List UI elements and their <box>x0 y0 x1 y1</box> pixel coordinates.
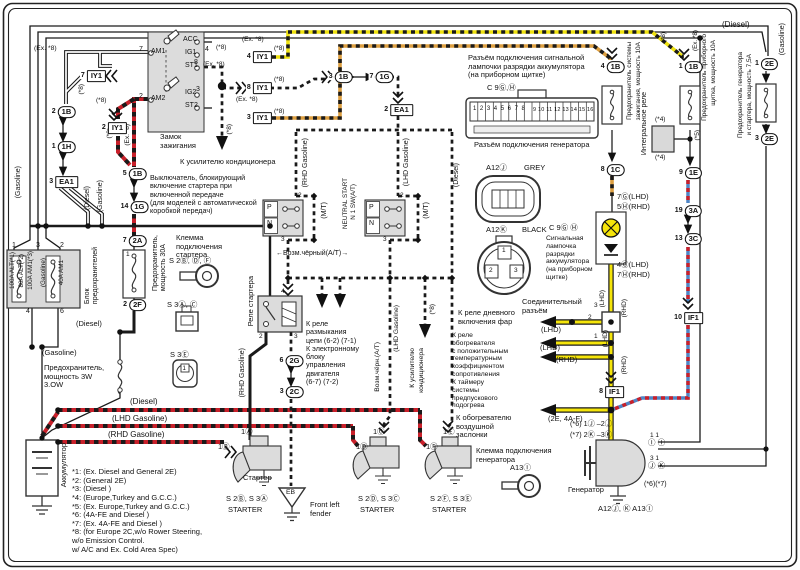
starter2-pin-c: 1Ⓒ <box>373 428 385 437</box>
relay-pin-3: 3 <box>294 333 298 340</box>
s8-7iy1: (*8) <box>78 84 85 94</box>
fb-pin-1: 1 <box>12 242 16 250</box>
eb-label: EB <box>286 489 295 497</box>
fb-pin-3: 3 <box>36 242 40 250</box>
connector-3-EA1: 3EA1 <box>48 176 78 188</box>
pn-right-pin2: 2 <box>400 192 404 199</box>
connector-1-1B-pin: 1 <box>678 64 684 71</box>
connector-13-3C-pin: 13 <box>674 236 684 243</box>
connector-8-1C: 81C <box>600 164 625 176</box>
s8-panel: (*8) <box>660 32 667 42</box>
choke-heater-note: К обогревателю воздушной заслонки <box>456 414 546 440</box>
connector-6-2G-pin: 6 <box>279 358 285 365</box>
connector-8-IY1: 8IY1 <box>246 82 272 94</box>
connector-1-2E-pin: 1 <box>754 61 760 68</box>
connector-7-1G-id: 1G <box>375 71 393 83</box>
connector-19-3A: 193A <box>674 205 702 217</box>
gen-terminal-label: Клемма подключения генератора <box>476 447 596 464</box>
jb-pin-3: 3 <box>594 302 598 309</box>
pn-left-n: N <box>267 220 272 228</box>
front-left-fender: Front left fender <box>310 501 340 518</box>
fb-pin-6: 6 <box>60 308 64 316</box>
star5: (*5) <box>694 130 701 140</box>
connector-1-1B-id: 1B <box>685 61 703 73</box>
connector-9-1E-pin: 9 <box>678 170 684 177</box>
pin-st1-8: 8 <box>194 59 198 67</box>
a12j: A12Ⓙ <box>486 164 507 173</box>
diesel-wire-label: (Diesel) <box>130 397 158 406</box>
starter1-en: STARTER <box>228 506 262 515</box>
s8-row3b: (*8) <box>274 108 284 115</box>
ex8-panel: (Ex. *8) <box>692 30 699 51</box>
gasoline-topright: (Gasoline) <box>779 23 787 55</box>
starter2-pin-d: 1Ⓓ <box>356 443 368 452</box>
starter1-pin-a: 1Ⓐ <box>241 428 253 437</box>
gasoline-ea1: (Gasoline) <box>97 180 105 212</box>
starter3-codes: S 2Ⓕ, S 3Ⓔ <box>430 495 472 504</box>
starter1-codes: S 2Ⓑ, S 3Ⓐ <box>226 495 268 504</box>
c9gh-lamp: C 9Ⓖ Ⓗ <box>549 224 578 233</box>
connector-3-EA1-pin: 3 <box>48 179 54 186</box>
battery-label: Аккумулятор <box>60 443 69 487</box>
ign-fuse-v1: Предохранитель системы <box>626 42 633 120</box>
gen-fuse-v2: и стартера, мощность 7,5А <box>746 54 753 135</box>
starter3-pin-e: 1Ⓔ <box>443 428 455 437</box>
a12j-grey: GREY <box>524 164 545 173</box>
connector-3-EA1-id: EA1 <box>55 176 78 188</box>
s8-row2b: (*8) <box>274 76 284 83</box>
fb-pin-2: 2 <box>60 242 64 250</box>
glow-timer-note: К таймеру системы предпускового подогрев… <box>452 379 522 410</box>
starter1-label: Стартер <box>243 474 272 483</box>
connector-3-2E-pin: 3 <box>754 136 760 143</box>
connector-3-2C-pin: 3 <box>279 389 285 396</box>
connector-4-1B-id: 1B <box>607 61 625 73</box>
charge-lamp-label: Сигнальная лампочка разрядки аккумулятор… <box>546 235 606 282</box>
vozm-black-at: ←Возм.чёрный(А/Т)→ <box>276 250 348 258</box>
neutral-start-2: N 1 SW(A/T) <box>350 184 357 220</box>
ignition-am1: AM1 <box>151 48 165 56</box>
connector-10-IF1: 10IF1 <box>673 312 703 324</box>
rhd-gasoline-wire-label: (RHD Gasoline) <box>108 430 164 439</box>
lamp-pin-4g-lhd: 4Ⓖ(LHD) <box>617 261 649 270</box>
lamp-pin-7g-lhd: 7Ⓖ(LHD) <box>617 193 649 202</box>
connector-3-1B-id: 1B <box>335 71 353 83</box>
s8-row1b: (*8) <box>274 45 284 52</box>
connector-1-1H-id: 1H <box>58 141 76 153</box>
gen-right-pins-jk: Ⓙ Ⓚ <box>648 462 665 471</box>
connector-3-2E-id: 2E <box>761 133 778 145</box>
connector-2-IY1: 2IY1 <box>101 122 127 134</box>
connector-3-2C-id: 2C <box>286 386 304 398</box>
drl-relay-note: К реле дневного включения фар <box>458 309 548 326</box>
s8-2iy1: (*8) <box>96 97 106 104</box>
connector-2-EA1-pin: 2 <box>383 107 389 114</box>
star4-a: (*4) <box>655 116 665 123</box>
starter3-en: STARTER <box>432 506 466 515</box>
connector-10-IF1-pin: 10 <box>673 315 683 322</box>
ac-amp-v2: кондиционера <box>418 348 426 393</box>
connector-2-EA1-id: EA1 <box>390 104 413 116</box>
connector-8-IF1-pin: 8 <box>598 389 604 396</box>
rhd-v-b: (RHD) <box>621 356 628 374</box>
connector-3-1B-pin: 3 <box>328 74 334 81</box>
c9-pins-1-8: 12345678 <box>473 106 529 113</box>
s8-acamp2: (*8) <box>429 304 436 314</box>
starter1-pin-b: 1Ⓑ <box>218 443 230 452</box>
lhd-p1: (LHD) <box>541 326 561 335</box>
gen-bottom-codes: A12Ⓙ, Ⓚ A13Ⓘ <box>598 505 653 514</box>
circuit-relay-note: К реле размыкания цепи (6-2) (7-1) К эле… <box>306 320 376 386</box>
connector-7-2A-id: 2A <box>129 235 147 247</box>
fuse-30a-label: Предохранитель, мощность 30А <box>152 235 168 291</box>
ex8-row2: (Ex. *8) <box>236 96 258 103</box>
generator-label: Генератор <box>568 486 604 495</box>
rhd-gas-v1: (RHD Gasoline) <box>239 348 247 397</box>
ignition-ig2: IG2 <box>185 89 196 97</box>
connector-7-IY1-pin: 7 <box>80 73 86 80</box>
ignition-st2: ST2 <box>185 102 198 110</box>
panel-fuse-v2: щитка, мощность 10А <box>710 40 717 106</box>
diesel-2f: (Diesel) <box>76 320 102 329</box>
connector-14-1G-pin: 14 <box>120 204 130 211</box>
pin-ig1-4: 4 <box>205 46 209 54</box>
c9gh-top: C 9Ⓖ,Ⓗ <box>487 84 516 93</box>
connector-6-2G: 62G <box>279 355 304 367</box>
lhd-gas-v2: (LHD Gasoline) <box>403 138 411 186</box>
inhibitor-note: Выключатель, блокирующий включение старт… <box>150 174 300 215</box>
jb-pin-2: 2 <box>588 314 592 321</box>
connector-8-1C-pin: 8 <box>600 167 606 174</box>
connector-4-IY1-pin: 4 <box>246 54 252 61</box>
connector-3-2E: 32E <box>754 133 778 145</box>
star4-b: (*4) <box>655 154 665 161</box>
connector-13-3C-id: 3C <box>685 233 703 245</box>
rhd-v-a: (RHD) <box>621 299 628 317</box>
ex8-row1: (Ex. *8) <box>242 36 264 43</box>
ignition-ig1: IG1 <box>185 49 196 57</box>
rhd-p2: (RHD) <box>556 356 577 365</box>
gen-right-pins-ii: Ⓘ Ⓘ <box>648 439 665 448</box>
fuse-3w-label: Предохранитель, мощность 3W 3.OW <box>44 364 124 390</box>
vozm-chern-v: Возм.чёрн.(А/Т) <box>374 342 382 392</box>
connector-5-1B-id: 1B <box>129 168 147 180</box>
pin-7-am1: 7 <box>139 46 143 54</box>
connector-3-IY1: 3IY1 <box>246 112 272 124</box>
lhd-v-a: (LHD) <box>599 290 606 307</box>
fuse30-pin1: 1 <box>126 251 130 258</box>
connector-2-2F-id: 2F <box>129 299 146 311</box>
s3e: S 3Ⓔ <box>170 351 189 360</box>
connector-3-IY1-id: IY1 <box>253 112 272 124</box>
connector-7-2A-pin: 7 <box>122 238 128 245</box>
ac-amp-label-1: К усилителю кондиционера <box>180 158 380 167</box>
panel-fuse-v1: Предохранитель приборного <box>701 34 708 121</box>
connector-7-IY1-id: IY1 <box>87 70 106 82</box>
connector-4-1B: 41B <box>600 61 625 73</box>
starter3-pin-f: 1Ⓕ <box>426 443 438 452</box>
connector-10-IF1-id: IF1 <box>684 312 703 324</box>
s2bdf: S 2Ⓑ, Ⓓ, Ⓕ <box>169 257 211 266</box>
wiring-diagram: (Ex. *8)72ACCIG1ST1IG2ST2AM1AM248(Ex. *8… <box>0 0 800 570</box>
pn-right-p: P <box>369 204 374 212</box>
connector-1-2E-id: 2E <box>761 58 778 70</box>
s8-row1a: (*8) <box>216 44 226 51</box>
gasoline-bat: (Gasoline) <box>42 349 77 358</box>
relay-pin-2: 2 <box>259 333 263 340</box>
relay-pin-4: 4 <box>281 288 285 295</box>
gen-conn-note: Разъём подключения генератора <box>474 141 644 150</box>
a12k-pin2: 2 <box>489 267 493 274</box>
connector-3-1B: 31B <box>328 71 353 83</box>
fb-gasoline: (Gasoline) <box>40 258 47 287</box>
s3ac: S 3Ⓐ, Ⓒ <box>167 301 197 310</box>
a12k-black: BLACK <box>522 226 547 235</box>
connector-3-IY1-pin: 3 <box>246 115 252 122</box>
starter2-codes: S 2Ⓓ, S 3Ⓒ <box>358 495 400 504</box>
lamp-pin-7h-rhd: 7Ⓗ(RHD) <box>617 271 650 280</box>
a13i: A13Ⓘ <box>510 464 531 473</box>
connector-1-1H: 11H <box>51 141 76 153</box>
connector-14-1G-id: 1G <box>130 201 148 213</box>
connector-8-IF1-id: IF1 <box>605 386 624 398</box>
connector-4-1B-pin: 4 <box>600 64 606 71</box>
diesel-ea1: (Diesel) <box>84 186 92 210</box>
ignition-am2: AM2 <box>151 95 165 103</box>
connector-14-1G: 141G <box>120 201 149 213</box>
s8-acamp: (*8) <box>226 124 233 134</box>
connector-8-IF1: 8IF1 <box>598 386 624 398</box>
rhd-gas-v2: (RHD Gasoline) <box>302 138 310 187</box>
mt-right: (M/T) <box>423 202 431 219</box>
connector-2-IY1-id: IY1 <box>108 122 127 134</box>
ex8-st1: (Ex. *8) <box>203 61 225 68</box>
connector-2-1B: 21B <box>51 106 76 118</box>
connector-9-1E: 91E <box>678 167 702 179</box>
jb-pin-1: 1 <box>594 333 598 340</box>
fb-100a-am1: 100A AM1(*3) <box>27 251 34 290</box>
pin-ig2-3: 3 <box>196 86 200 94</box>
gen-fuse-v1: Предохранитель генератора <box>737 52 744 138</box>
gen-star67: (*6)(*7) <box>644 481 667 489</box>
ac-amp-v1: К усилителю <box>409 348 417 388</box>
lhd-gas-v3: (LHD Gasoline) <box>393 305 401 352</box>
ignition-label: Замок зажигания <box>160 133 196 150</box>
mt-left: (M/T) <box>321 202 329 219</box>
connector-6-2G-id: 2G <box>285 355 303 367</box>
connector-8-IY1-pin: 8 <box>246 85 252 92</box>
starter2-en: STARTER <box>360 506 394 515</box>
c9-pins-9-16: 9 10 11 12 13 14 15 16 <box>533 107 594 113</box>
pn-right-n: N <box>369 220 374 228</box>
pn-right-pin3: 3 <box>383 236 387 243</box>
connector-2-1B-pin: 2 <box>51 109 57 116</box>
fb-100a-alt1: 100A ALT(*1) <box>9 252 16 289</box>
gen-pins-7: (*7) 2Ⓚ –3Ⓚ <box>570 431 612 439</box>
connector-5-1B-pin: 5 <box>122 171 128 178</box>
connector-1-1B: 11B <box>678 61 703 73</box>
connector-2-2F: 22F <box>122 299 146 311</box>
neutral-start-1: NEUTRAL START <box>342 178 349 229</box>
a12k-pin1: 1 <box>502 247 506 254</box>
pn-left-pin3: 3 <box>281 236 285 243</box>
fb-80a-alt2: 80A ALT(*2) <box>18 254 25 288</box>
connector-19-3A-id: 3A <box>685 205 703 217</box>
lhd-p2: (LHD) <box>540 344 560 353</box>
fuse-block-label: Блок предохранителей <box>84 247 100 304</box>
connector-2-1B-id: 1B <box>58 106 76 118</box>
fb-pin-4: 4 <box>26 308 30 316</box>
lhd-v-b: (LHD) <box>602 330 609 347</box>
connector-1-2E: 12E <box>754 58 778 70</box>
connector-7-1G-pin: 7 <box>369 74 375 81</box>
connector-1-1H-pin: 1 <box>51 144 57 151</box>
connector-5-1B: 51B <box>122 168 147 180</box>
s3e-pin1: 1 <box>183 366 186 373</box>
connector-7-2A: 72A <box>122 235 147 247</box>
pn-left-pin2: 2 <box>298 192 302 199</box>
lhd-gasoline-wire-label: (LHD Gasoline) <box>112 414 167 423</box>
connector-7-1G: 71G <box>369 71 394 83</box>
diesel-v2: (Diesel) <box>453 163 461 187</box>
connector-2-EA1: 2EA1 <box>383 104 413 116</box>
connector-9-1E-id: 1E <box>685 167 702 179</box>
connector-13-3C: 133C <box>674 233 702 245</box>
connector-3-2C: 32C <box>279 386 304 398</box>
connector-8-IY1-id: IY1 <box>253 82 272 94</box>
label-ex8-am1: (Ex. *8) <box>34 45 57 53</box>
a12k-pin3: 3 <box>514 267 518 274</box>
connector-19-3A-pin: 19 <box>674 208 684 215</box>
ignition-acc: ACC <box>183 36 198 44</box>
connector-8-1C-id: 1C <box>607 164 625 176</box>
pn-left-p: P <box>267 204 272 212</box>
fb-40a-am1: 40A AM1 <box>58 260 65 285</box>
starter-relay-label: Реле стартера <box>247 276 256 326</box>
connector-4-IY1: 4IY1 <box>246 51 272 63</box>
connector-2-IY1-pin: 2 <box>101 125 107 132</box>
gasoline-frame: (Gasoline) <box>15 166 23 198</box>
a12k: A12Ⓚ <box>486 226 507 235</box>
ptc-heater-note: К реле обогревателя с положительным темп… <box>452 332 530 379</box>
connector-2-2F-pin: 2 <box>122 302 128 309</box>
pin-2-am2: 2 <box>139 93 143 101</box>
connector-7-IY1: 7IY1 <box>80 70 106 82</box>
connector-4-IY1-id: IY1 <box>253 51 272 63</box>
integral-relay-label: Интегральное реле <box>641 92 649 155</box>
lamp-pin-5h-rhd: 5Ⓗ(RHD) <box>617 203 650 212</box>
gen-pins-6: (*6) 1Ⓙ –2Ⓙ <box>570 420 612 428</box>
diesel-topright: (Diesel) <box>722 20 750 29</box>
